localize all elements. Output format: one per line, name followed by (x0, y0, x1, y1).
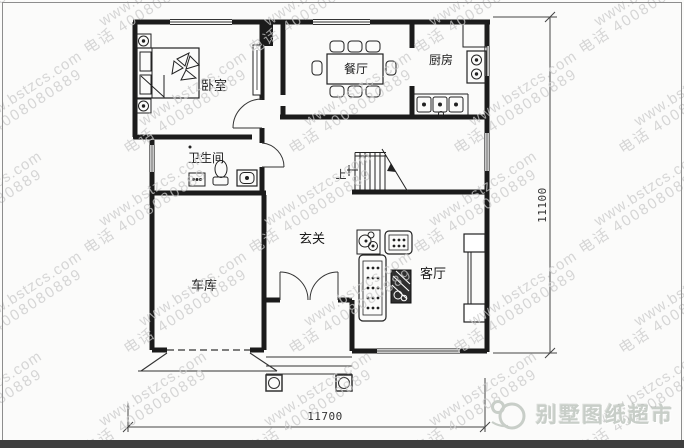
living-bay-window (464, 234, 485, 322)
stairs-up-label: 上 (336, 168, 347, 181)
dimension-lines (123, 12, 557, 432)
room-label-kitchen: 厨房 (429, 52, 453, 67)
ceiling-point (189, 146, 192, 149)
nightstand (136, 34, 151, 48)
dining-chair (348, 41, 362, 52)
porch-and-garage-front (138, 353, 352, 391)
washing-machine (189, 173, 205, 186)
dining-chair (330, 41, 344, 52)
bed (137, 48, 199, 98)
room-label-bedroom: 卧室 (201, 78, 227, 93)
kitchen-corner-counter (463, 23, 486, 47)
entry-double-door (280, 272, 338, 300)
bottom-dark-bar (0, 440, 684, 448)
plant-stand (357, 230, 380, 254)
porch-column (266, 375, 282, 391)
dining-chair (330, 86, 344, 97)
nightstand (136, 99, 151, 113)
garage-apron (138, 353, 277, 371)
sofa (359, 255, 386, 321)
floor-plan-page: 11100 11700 卧室 餐厅 厨房 卫生间 玄关 车库 客厅 上 www.… (0, 0, 684, 448)
bathroom-sink (237, 170, 257, 186)
kitchen-fixtures (412, 23, 486, 117)
bedroom-furniture (136, 34, 199, 113)
dining-chair (366, 86, 380, 97)
porch-steps (266, 357, 352, 374)
bedroom-door (233, 99, 262, 128)
brand-name: 别墅图纸超市 (536, 399, 674, 429)
dining-chair (386, 61, 396, 75)
stairs (347, 149, 408, 192)
brand-logo-icon (488, 396, 530, 432)
dimension-bottom: 11700 (307, 410, 343, 423)
living-furniture (357, 230, 412, 321)
bedroom-top-window (170, 20, 232, 25)
living-bottom-window (377, 349, 460, 354)
room-label-bathroom: 卫生间 (188, 151, 224, 165)
bathroom-left-window (150, 145, 155, 172)
room-label-living: 客厅 (420, 266, 446, 281)
bedroom-right-panel (253, 45, 261, 95)
dining-top-window (313, 20, 370, 25)
kitchen-sink-counter (412, 94, 468, 117)
brand-watermark: 别墅图纸超市 (488, 396, 674, 432)
dining-chair (366, 41, 380, 52)
porch-column (336, 375, 352, 391)
coffee-table (391, 270, 411, 303)
dining-chair (312, 61, 322, 75)
armchair (385, 231, 412, 254)
dimension-right: 11100 (536, 187, 549, 223)
stove (467, 51, 486, 83)
bathroom-door (262, 143, 284, 167)
floor-plan-drawing: 11100 11700 卧室 餐厅 厨房 卫生间 玄关 车库 客厅 上 (0, 0, 684, 448)
room-label-garage: 车库 (191, 278, 217, 293)
hall-right-window (485, 133, 490, 171)
dining-chair (348, 86, 362, 97)
room-label-entry: 玄关 (299, 231, 325, 246)
room-label-dining: 餐厅 (344, 61, 368, 76)
